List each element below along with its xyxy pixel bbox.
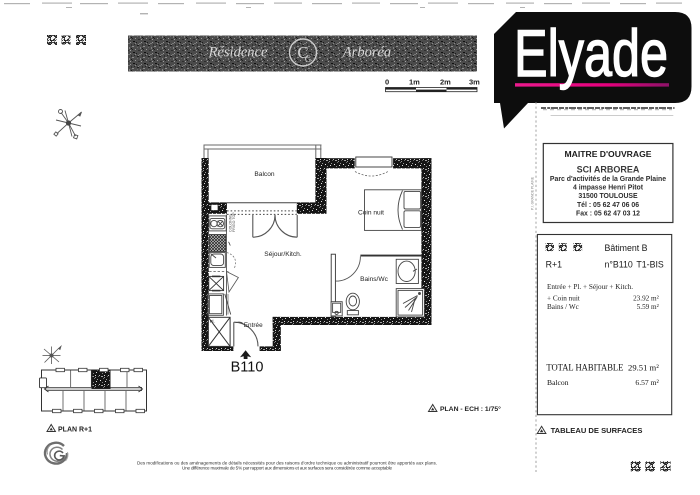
svg-text:Balcon: Balcon (254, 171, 274, 178)
svg-text:Elyade: Elyade (514, 16, 668, 90)
svg-text:Balcon: Balcon (547, 378, 569, 387)
svg-text:Entrée: Entrée (244, 322, 263, 329)
svg-text:Arboréa: Arboréa (342, 45, 391, 61)
svg-text:+ Coin nuit: + Coin nuit (547, 294, 580, 302)
svg-text:TABLEAU DE SURFACES: TABLEAU DE SURFACES (551, 426, 643, 435)
svg-text:PLAN - ECH : 1/75°: PLAN - ECH : 1/75° (440, 405, 501, 413)
svg-text:Pl.: Pl. (210, 319, 215, 324)
svg-text:TOTAL HABITABLE: TOTAL HABITABLE (546, 363, 623, 374)
svg-text:R+1: R+1 (546, 260, 562, 270)
svg-text:31500 TOULOUSE: 31500 TOULOUSE (578, 193, 638, 200)
svg-text:0: 0 (385, 78, 389, 87)
svg-text:2m: 2m (440, 78, 451, 87)
svg-text:PLAN R+1: PLAN R+1 (58, 427, 92, 434)
svg-text:3m: 3m (469, 78, 480, 87)
svg-text:T1-BIS: T1-BIS (636, 260, 664, 270)
svg-text:29.51 m²: 29.51 m² (628, 363, 659, 373)
svg-text:6.57 m²: 6.57 m² (635, 378, 659, 387)
svg-text:n°B110: n°B110 (605, 260, 633, 270)
svg-text:23.92 m²: 23.92 m² (633, 294, 659, 302)
svg-text:MAITRE D'OUVRAGE: MAITRE D'OUVRAGE (564, 149, 651, 159)
svg-text:Une différence maximale de 5%: Une différence maximale de 5% par rappor… (182, 466, 392, 471)
svg-text:Bains / Wc: Bains / Wc (547, 303, 579, 311)
svg-text:Bains/Wc: Bains/Wc (360, 276, 389, 283)
svg-text:P.I. GRANDE PLAINE: P.I. GRANDE PLAINE (531, 176, 535, 210)
svg-text:Coin nuit: Coin nuit (358, 210, 384, 217)
svg-text:FRIGO TOP: FRIGO TOP (232, 212, 236, 232)
svg-text:G: G (305, 54, 312, 64)
svg-text:4 impasse Henri Pitot: 4 impasse Henri Pitot (573, 185, 644, 192)
svg-text:Tél : 05 62 47 06 06: Tél : 05 62 47 06 06 (577, 202, 639, 209)
svg-text:Séjour/Kitch.: Séjour/Kitch. (264, 251, 302, 258)
svg-text:Fax : 05 62 47 03 12: Fax : 05 62 47 03 12 (576, 210, 640, 217)
svg-text:1m: 1m (409, 78, 420, 87)
svg-text:SCI ARBOREA: SCI ARBOREA (577, 165, 640, 175)
svg-text:B110: B110 (231, 360, 264, 376)
svg-text:5.59 m²: 5.59 m² (637, 303, 659, 311)
svg-text:Entrée + Pl. + Séjour + Kitch.: Entrée + Pl. + Séjour + Kitch. (547, 283, 633, 291)
svg-text:Parc d'activités de la Grande: Parc d'activités de la Grande Plaine (550, 176, 666, 183)
svg-text:Bâtiment B: Bâtiment B (605, 243, 648, 253)
svg-text:Résidence: Résidence (208, 45, 268, 61)
